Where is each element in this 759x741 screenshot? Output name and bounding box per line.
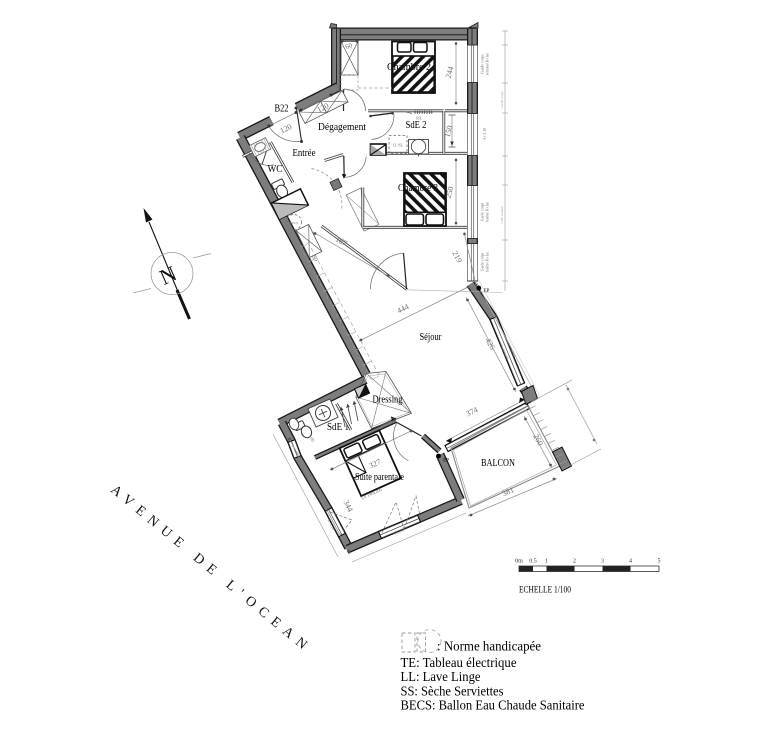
svg-text:SdE 2: SdE 2 (406, 119, 427, 131)
svg-text:Suite parentale: Suite parentale (355, 471, 404, 483)
svg-text:fenêtre H+1m: fenêtre H+1m (486, 202, 490, 222)
svg-text:TE: Tableau électrique: TE: Tableau électrique (401, 655, 517, 670)
svg-text:BALCON: BALCON (481, 457, 515, 469)
svg-text:4: 4 (629, 559, 632, 565)
svg-text:A+1.10: A+1.10 (482, 128, 487, 140)
svg-text:: Norme handicapée: : Norme handicapée (437, 639, 541, 654)
svg-text:WC: WC (268, 163, 283, 175)
svg-text:Garde corps: Garde corps (481, 202, 485, 221)
svg-text:LL/SL: LL/SL (393, 144, 404, 148)
svg-text:RX: RX (416, 116, 422, 121)
svg-text:Dégagement: Dégagement (318, 121, 366, 133)
svg-text:Garde corps: Garde corps (481, 252, 485, 271)
svg-text:remonté H+1m: remonté H+1m (486, 53, 490, 75)
svg-text:Garde corps: Garde corps (480, 54, 485, 74)
svg-text:5: 5 (658, 559, 661, 565)
svg-text:LL: Lave Linge: LL: Lave Linge (401, 669, 481, 684)
svg-text:BECS: Ballon Eau Chaude Sanita: BECS: Ballon Eau Chaude Sanitaire (401, 698, 585, 713)
svg-text:2: 2 (573, 559, 576, 565)
svg-text:ECHELLE 1/100: ECHELLE 1/100 (519, 586, 571, 596)
svg-text:Garde corps: Garde corps (500, 91, 504, 109)
svg-text:EP: EP (484, 289, 490, 294)
svg-text:volet roulant: volet roulant (500, 206, 504, 224)
svg-text:SS: Sèche Serviettes: SS: Sèche Serviettes (401, 684, 504, 699)
svg-text:Séjour: Séjour (420, 331, 442, 343)
svg-text:EP: EP (443, 459, 449, 464)
svg-text:3: 3 (601, 559, 604, 565)
svg-text:0.5: 0.5 (529, 559, 537, 565)
svg-text:1: 1 (545, 559, 548, 565)
svg-text:Dressing: Dressing (373, 394, 403, 406)
svg-text:BECS: BECS (290, 221, 299, 225)
svg-text:0m: 0m (515, 559, 523, 565)
svg-text:B22: B22 (275, 103, 289, 115)
svg-text:Entrée: Entrée (293, 147, 316, 159)
svg-text:fenêtre H+1m: fenêtre H+1m (486, 252, 490, 272)
